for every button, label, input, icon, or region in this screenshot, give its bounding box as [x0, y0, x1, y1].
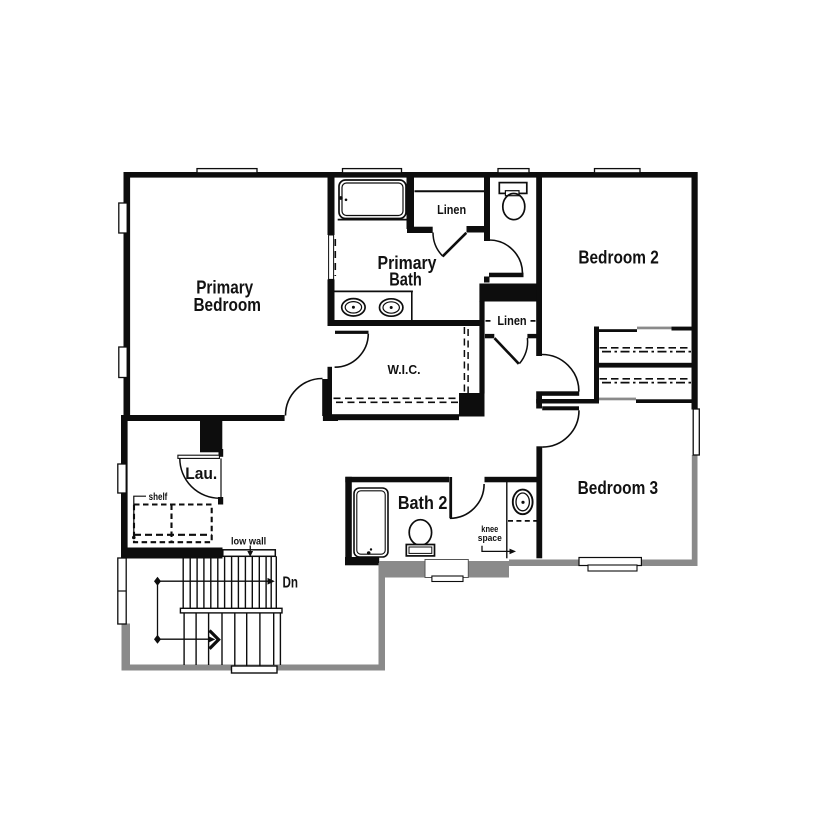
svg-text:space: space [478, 533, 502, 544]
svg-text:Dn: Dn [283, 574, 299, 591]
svg-text:Linen: Linen [437, 202, 466, 217]
svg-text:Bath 2: Bath 2 [398, 493, 448, 513]
svg-text:low wall: low wall [231, 535, 266, 547]
svg-text:Bedroom 2: Bedroom 2 [578, 248, 659, 268]
svg-text:shelf: shelf [149, 492, 168, 503]
svg-text:W.I.C.: W.I.C. [388, 362, 421, 377]
svg-text:Bath: Bath [389, 270, 422, 290]
svg-text:Bedroom: Bedroom [193, 295, 261, 315]
svg-text:Lau.: Lau. [185, 465, 217, 483]
svg-text:Linen: Linen [497, 313, 526, 328]
svg-text:Bedroom 3: Bedroom 3 [578, 478, 659, 498]
